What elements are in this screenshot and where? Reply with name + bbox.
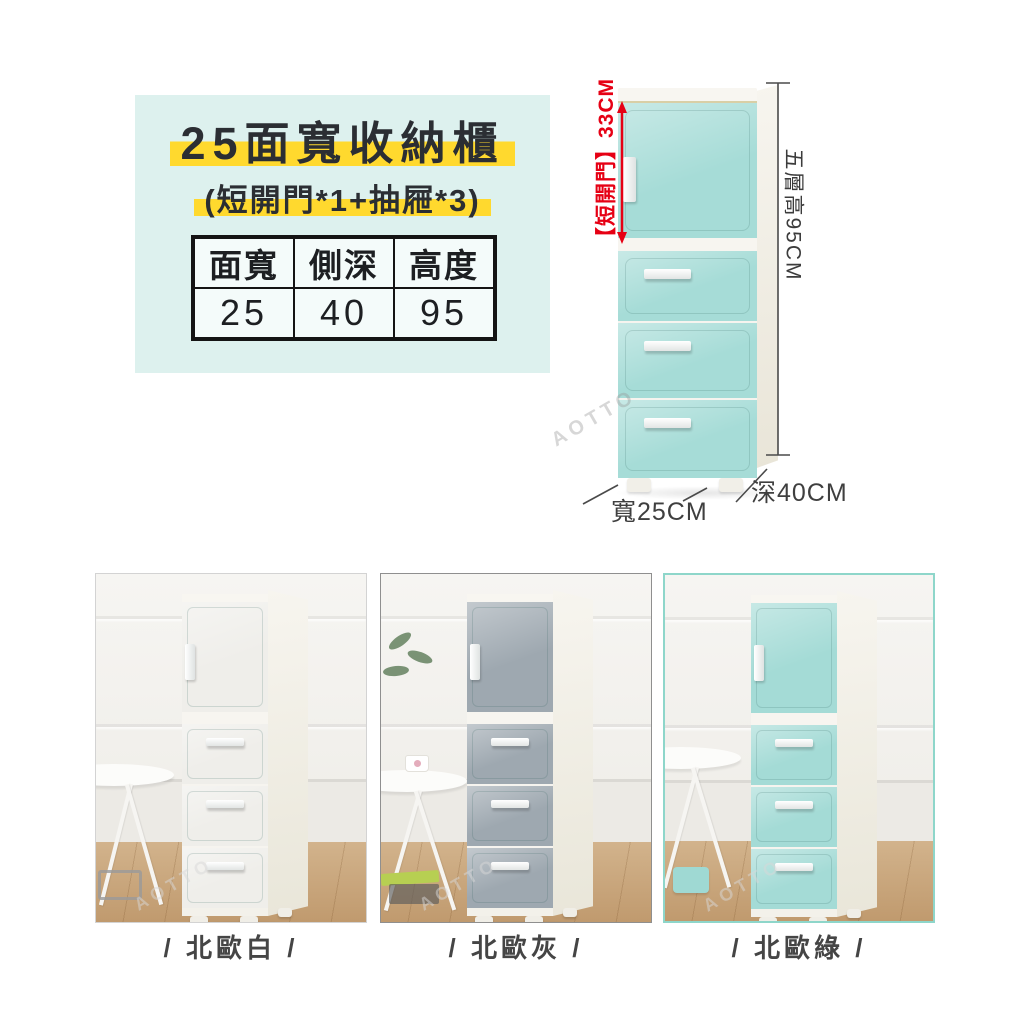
cabinet-top: [467, 594, 553, 602]
cabinet-drawer-2: [467, 786, 553, 846]
cabinet-drawer-1: [182, 724, 268, 784]
variant-label-nordic-white: / 北歐白 /: [95, 928, 367, 965]
cabinet-foot: [525, 916, 543, 923]
cabinet-nordic-green: [751, 591, 877, 923]
cabinet-front: [467, 594, 553, 916]
cabinet-door: [467, 602, 553, 712]
drawer-handle: [491, 862, 529, 870]
product-title: 25面寬收納櫃: [135, 107, 550, 172]
cabinet-divider: [751, 713, 837, 725]
cabinet-side-panel: [553, 590, 593, 916]
cabinet-nordic-white: [182, 590, 308, 923]
cabinet-drawer-3: [751, 849, 837, 909]
drawer-handle: [775, 801, 813, 809]
cabinet-base: [182, 908, 268, 916]
cabinet-foot: [809, 917, 827, 923]
variant-label-nordic-grey: / 北歐灰 /: [380, 928, 652, 965]
depth-annotation: 深40CM: [751, 473, 848, 509]
door-height-annotation: 【短開門】33CM: [590, 92, 612, 248]
cabinet-drawer-1: [467, 724, 553, 784]
product-page: 25面寬收納櫃 (短開門*1+抽屜*3) 面寬 側深 高度 25 40 95: [0, 0, 1024, 1024]
drawer-handle: [775, 863, 813, 871]
cabinet-door: [182, 602, 268, 712]
door-handle: [754, 645, 764, 681]
cabinet-nordic-grey: [467, 590, 593, 923]
cabinet-base: [467, 908, 553, 916]
spec-table: 面寬 側深 高度 25 40 95: [191, 235, 497, 341]
cabinet-door: [751, 603, 837, 713]
variant-label-nordic-green: / 北歐綠 /: [663, 928, 935, 965]
cabinet-foot: [847, 909, 861, 918]
door-handle: [185, 644, 195, 680]
door-handle: [470, 644, 480, 680]
drawer-handle: [775, 739, 813, 747]
cabinet-drawer-1: [751, 725, 837, 785]
spec-card: 25面寬收納櫃 (短開門*1+抽屜*3) 面寬 側深 高度 25 40 95: [135, 95, 550, 373]
spec-value-depth: 40: [294, 288, 394, 338]
cabinet-front: [182, 594, 268, 916]
cabinet-divider: [182, 712, 268, 724]
cabinet-foot: [190, 916, 208, 923]
cabinet-side-panel: [837, 591, 877, 917]
cabinet-drawer-2: [182, 786, 268, 846]
spec-header-height: 高度: [394, 238, 494, 288]
spec-value-height: 95: [394, 288, 494, 338]
cabinet-drawer-3: [182, 848, 268, 908]
variant-photo-nordic-white: AOTTO: [95, 573, 367, 923]
spec-header-depth: 側深: [294, 238, 394, 288]
drawer-handle: [491, 738, 529, 746]
cup: [405, 755, 429, 772]
cabinet-base: [751, 909, 837, 917]
drawer-handle: [206, 800, 244, 808]
cabinet-drawer-2: [751, 787, 837, 847]
wire-basket: [98, 870, 142, 900]
cabinet-divider: [467, 712, 553, 724]
cabinet-foot: [240, 916, 258, 923]
teal-box: [673, 867, 709, 893]
drawer-handle: [206, 862, 244, 870]
spec-value-width: 25: [194, 288, 294, 338]
total-height-annotation: 五層高95CM: [786, 133, 810, 298]
cabinet-drawer-3: [467, 848, 553, 908]
variant-photo-nordic-green: AOTTO: [663, 573, 935, 923]
dimension-diagram: 【短開門】33CM 五層高95CM 寬25CM 深40CM AOTTO: [555, 55, 925, 535]
dark-item: [389, 884, 439, 904]
cabinet-side-panel: [268, 590, 308, 916]
cabinet-foot: [759, 917, 777, 923]
cabinet-top: [182, 594, 268, 602]
drawer-handle: [206, 738, 244, 746]
variant-photo-nordic-grey: AOTTO: [380, 573, 652, 923]
cabinet-front: [751, 595, 837, 917]
drawer-handle: [491, 800, 529, 808]
width-annotation: 寬25CM: [611, 492, 708, 528]
cabinet-top: [751, 595, 837, 603]
cabinet-foot: [278, 908, 292, 917]
cabinet-foot: [563, 908, 577, 917]
cabinet-foot: [475, 916, 493, 923]
cabinet-shadow: [745, 921, 885, 923]
spec-header-width: 面寬: [194, 238, 294, 288]
product-subtitle: (短開門*1+抽屜*3): [135, 175, 550, 220]
